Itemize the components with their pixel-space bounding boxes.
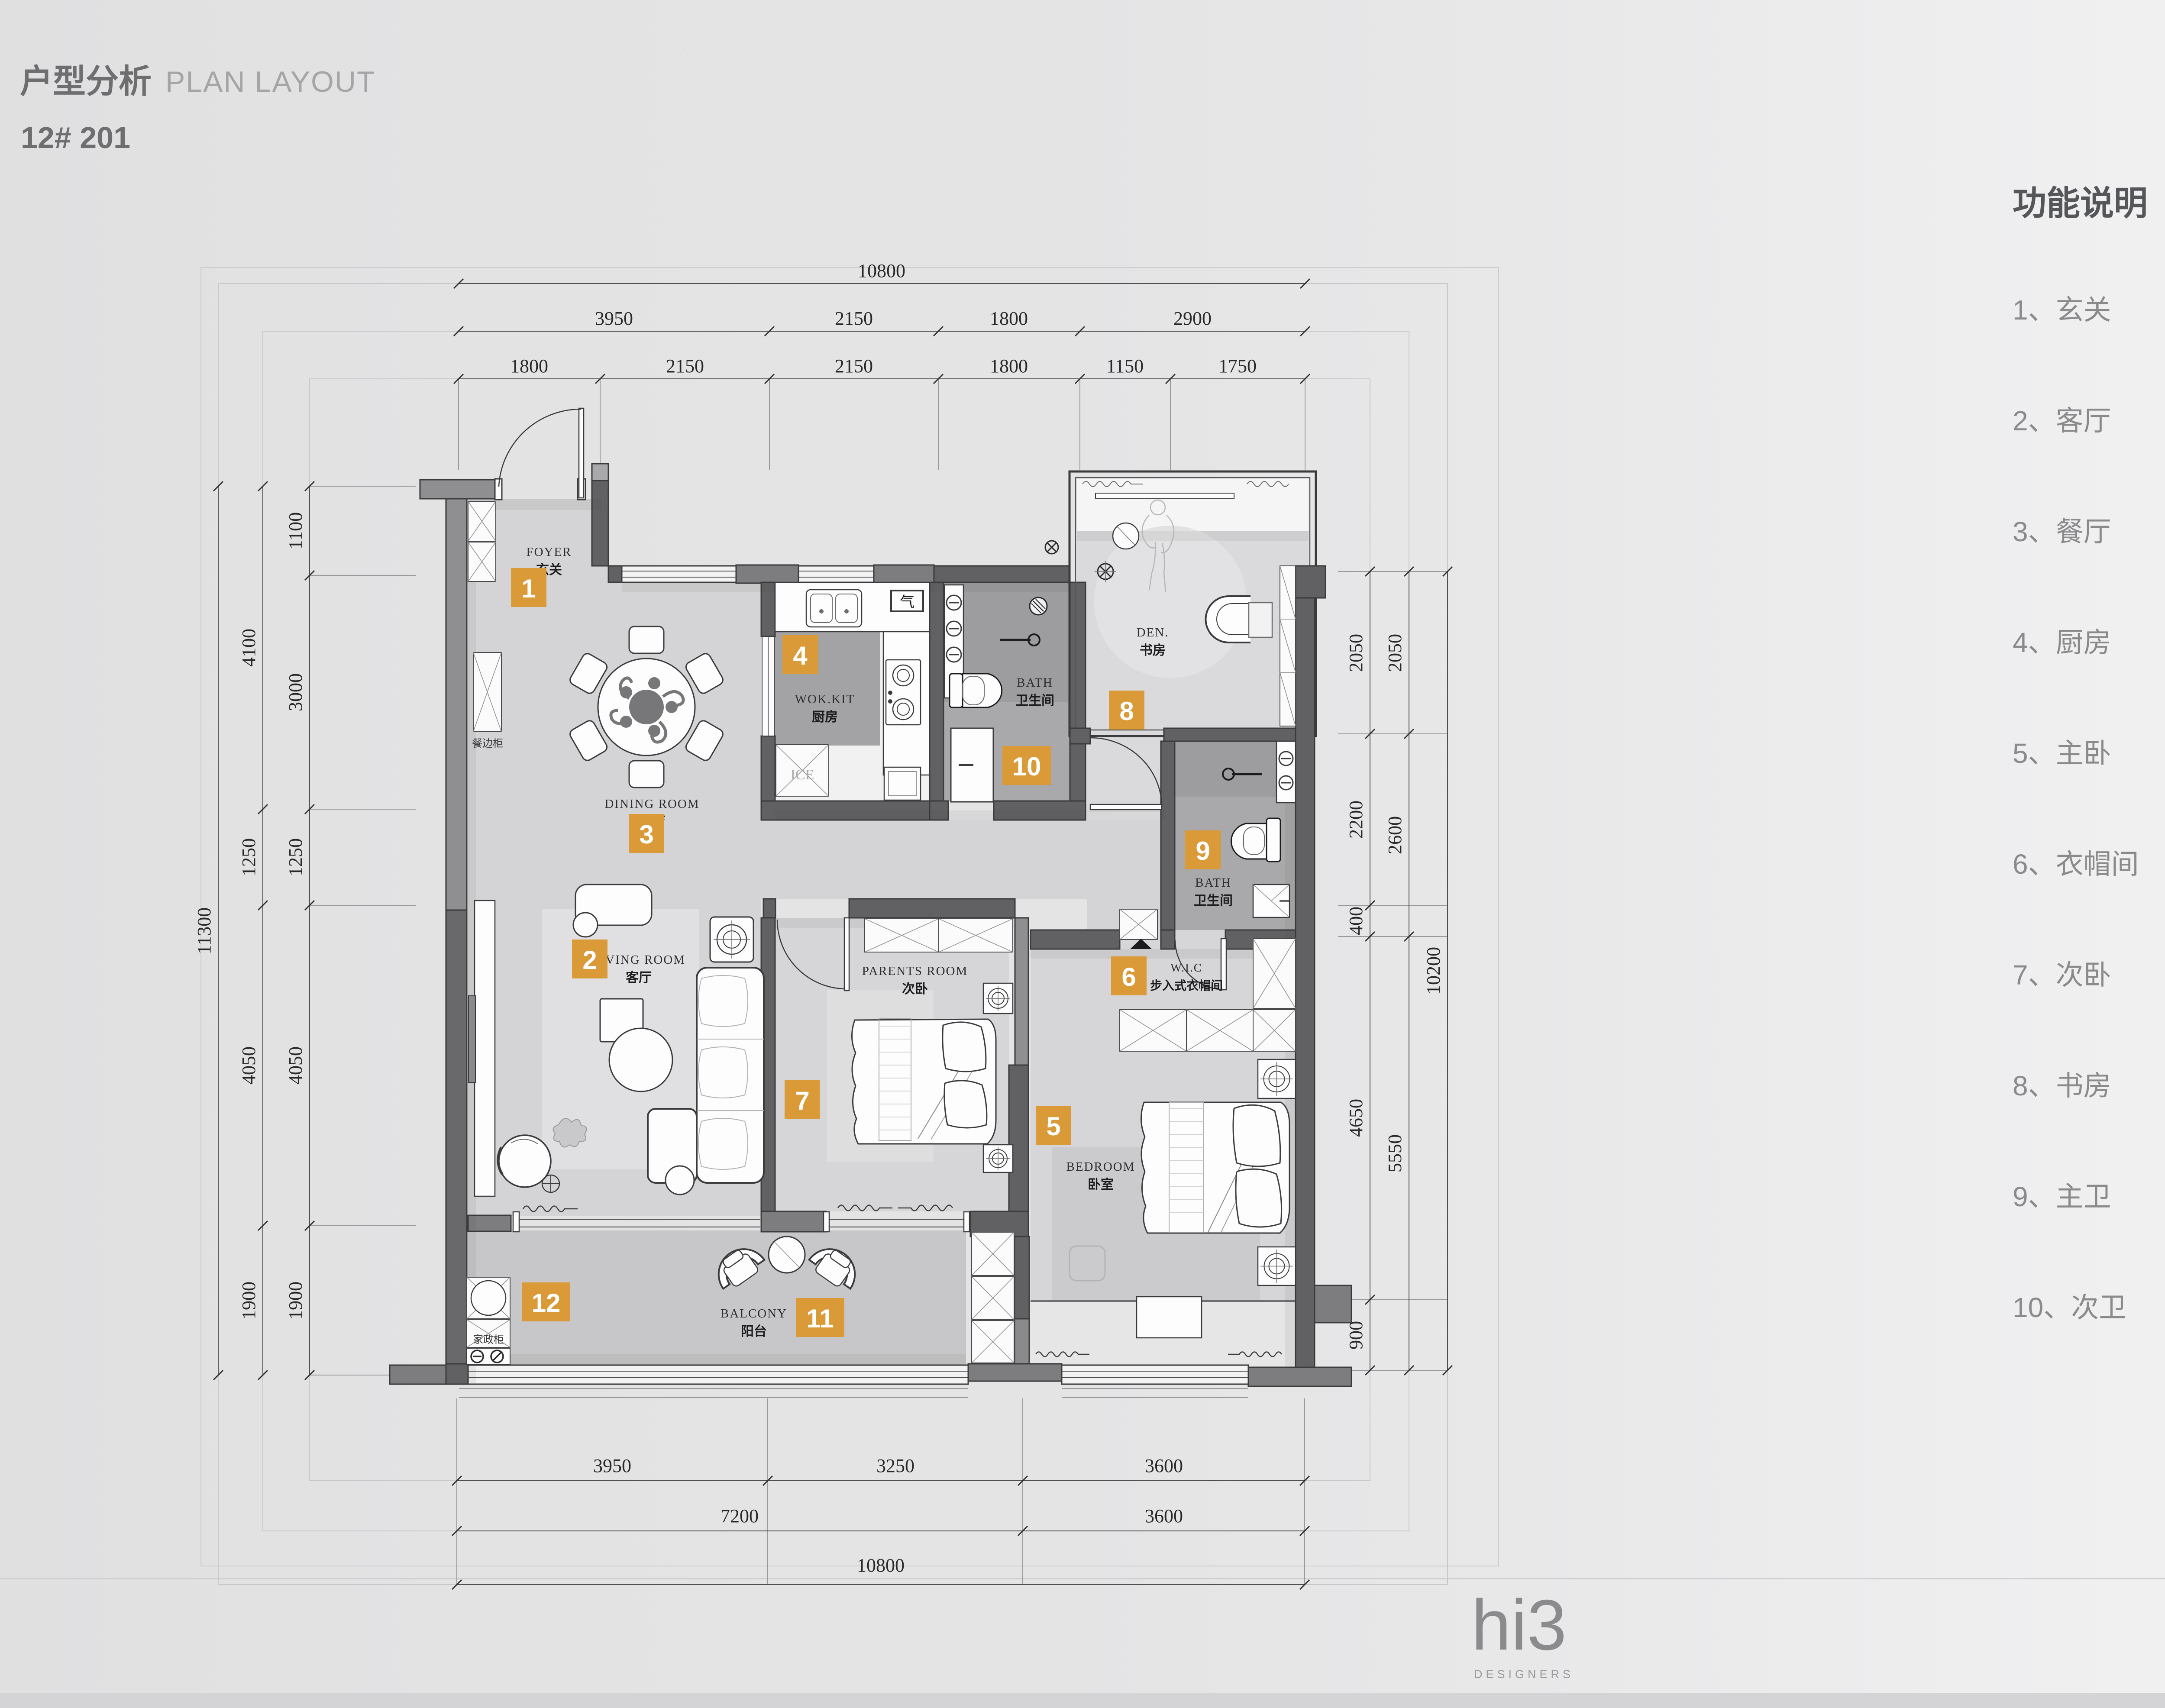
svg-text:5550: 5550: [1384, 1134, 1406, 1172]
svg-text:10: 10: [1012, 752, 1041, 781]
svg-text:BEDROOM: BEDROOM: [1066, 1160, 1135, 1174]
svg-text:7200: 7200: [721, 1505, 759, 1527]
svg-text:8: 8: [1119, 697, 1134, 726]
svg-text:PARENTS ROOM: PARENTS ROOM: [862, 964, 968, 978]
svg-text:4: 4: [793, 641, 808, 670]
svg-text:1800: 1800: [990, 355, 1028, 377]
svg-text:家政柜: 家政柜: [473, 1334, 504, 1346]
svg-text:1750: 1750: [1218, 355, 1257, 377]
svg-text:PLAN LAYOUT: PLAN LAYOUT: [165, 65, 376, 98]
svg-text:10800: 10800: [857, 1555, 905, 1576]
svg-text:2150: 2150: [835, 355, 873, 377]
svg-text:2: 2: [582, 946, 597, 975]
svg-text:11300: 11300: [194, 907, 215, 954]
svg-text:1900: 1900: [238, 1282, 259, 1320]
svg-text:2、客厅: 2、客厅: [2013, 405, 2111, 436]
svg-text:4050: 4050: [238, 1046, 259, 1085]
svg-text:2900: 2900: [1173, 308, 1212, 329]
svg-text:WOK.KIT: WOK.KIT: [795, 692, 855, 706]
svg-text:卫生间: 卫生间: [1015, 694, 1054, 708]
svg-text:W.I.C: W.I.C: [1170, 961, 1202, 974]
svg-text:5、主卧: 5、主卧: [2013, 738, 2111, 769]
svg-text:7、次卧: 7、次卧: [2013, 959, 2111, 991]
svg-text:1: 1: [521, 574, 536, 603]
svg-text:9、主卫: 9、主卫: [2013, 1181, 2111, 1212]
svg-text:2050: 2050: [1384, 634, 1406, 672]
svg-text:厨房: 厨房: [812, 710, 838, 724]
svg-text:BALCONY: BALCONY: [721, 1307, 787, 1321]
svg-text:书房: 书房: [1140, 643, 1166, 658]
svg-text:3950: 3950: [593, 1455, 631, 1476]
svg-text:2150: 2150: [835, 308, 873, 329]
svg-text:BATH: BATH: [1195, 876, 1231, 890]
svg-text:卧室: 卧室: [1088, 1177, 1114, 1192]
svg-text:2600: 2600: [1384, 816, 1406, 854]
svg-text:6、衣帽间: 6、衣帽间: [2013, 849, 2139, 880]
svg-text:FOYER: FOYER: [526, 545, 572, 559]
svg-text:卫生间: 卫生间: [1194, 894, 1233, 908]
svg-text:1100: 1100: [285, 512, 306, 549]
svg-text:900: 900: [1345, 1321, 1367, 1350]
svg-text:11: 11: [806, 1304, 834, 1333]
svg-text:9: 9: [1196, 836, 1210, 865]
svg-text:阳台: 阳台: [741, 1324, 767, 1339]
svg-text:4、厨房: 4、厨房: [2013, 627, 2111, 658]
svg-text:10、次卫: 10、次卫: [2013, 1292, 2126, 1323]
svg-text:7: 7: [795, 1086, 809, 1115]
svg-text:hi3: hi3: [1471, 1585, 1567, 1665]
svg-text:8、书房: 8、书房: [2013, 1070, 2111, 1101]
svg-text:1900: 1900: [285, 1282, 306, 1320]
svg-text:3950: 3950: [595, 308, 633, 329]
svg-text:3、餐厅: 3、餐厅: [2013, 516, 2111, 547]
svg-text:4050: 4050: [285, 1046, 306, 1085]
svg-text:3000: 3000: [285, 673, 306, 711]
svg-text:2200: 2200: [1345, 801, 1367, 839]
svg-text:气: 气: [900, 594, 914, 610]
svg-text:步入式衣帽间: 步入式衣帽间: [1150, 978, 1223, 992]
svg-text:1250: 1250: [285, 838, 306, 876]
svg-text:1800: 1800: [990, 308, 1028, 329]
svg-text:次卧: 次卧: [902, 982, 928, 996]
svg-text:3: 3: [639, 820, 653, 849]
svg-text:4100: 4100: [238, 629, 259, 667]
svg-text:1150: 1150: [1106, 355, 1144, 377]
svg-text:餐边柜: 餐边柜: [472, 738, 503, 749]
svg-text:12# 201: 12# 201: [21, 121, 130, 155]
svg-text:2050: 2050: [1345, 634, 1367, 672]
svg-text:3600: 3600: [1145, 1505, 1183, 1527]
svg-text:客厅: 客厅: [626, 970, 652, 985]
svg-text:12: 12: [532, 1288, 561, 1317]
svg-text:5: 5: [1046, 1112, 1060, 1141]
svg-text:功能说明: 功能说明: [2013, 184, 2148, 222]
svg-text:户型分析: 户型分析: [20, 63, 152, 100]
svg-text:1、玄关: 1、玄关: [2013, 294, 2111, 326]
svg-text:2150: 2150: [666, 355, 704, 377]
svg-text:400: 400: [1345, 907, 1367, 935]
svg-text:BATH: BATH: [1017, 676, 1053, 690]
svg-text:3250: 3250: [876, 1455, 914, 1476]
svg-text:10800: 10800: [858, 260, 905, 281]
svg-text:DEN.: DEN.: [1137, 626, 1169, 639]
svg-text:DESIGNERS: DESIGNERS: [1474, 1668, 1574, 1681]
svg-text:6: 6: [1121, 962, 1136, 991]
svg-text:1800: 1800: [510, 355, 548, 377]
svg-text:DINING ROOM: DINING ROOM: [604, 797, 699, 811]
svg-text:10200: 10200: [1423, 947, 1444, 994]
svg-text:4650: 4650: [1345, 1099, 1367, 1137]
svg-text:ICE: ICE: [791, 767, 814, 783]
svg-text:3600: 3600: [1145, 1455, 1183, 1476]
svg-text:1250: 1250: [238, 838, 259, 876]
